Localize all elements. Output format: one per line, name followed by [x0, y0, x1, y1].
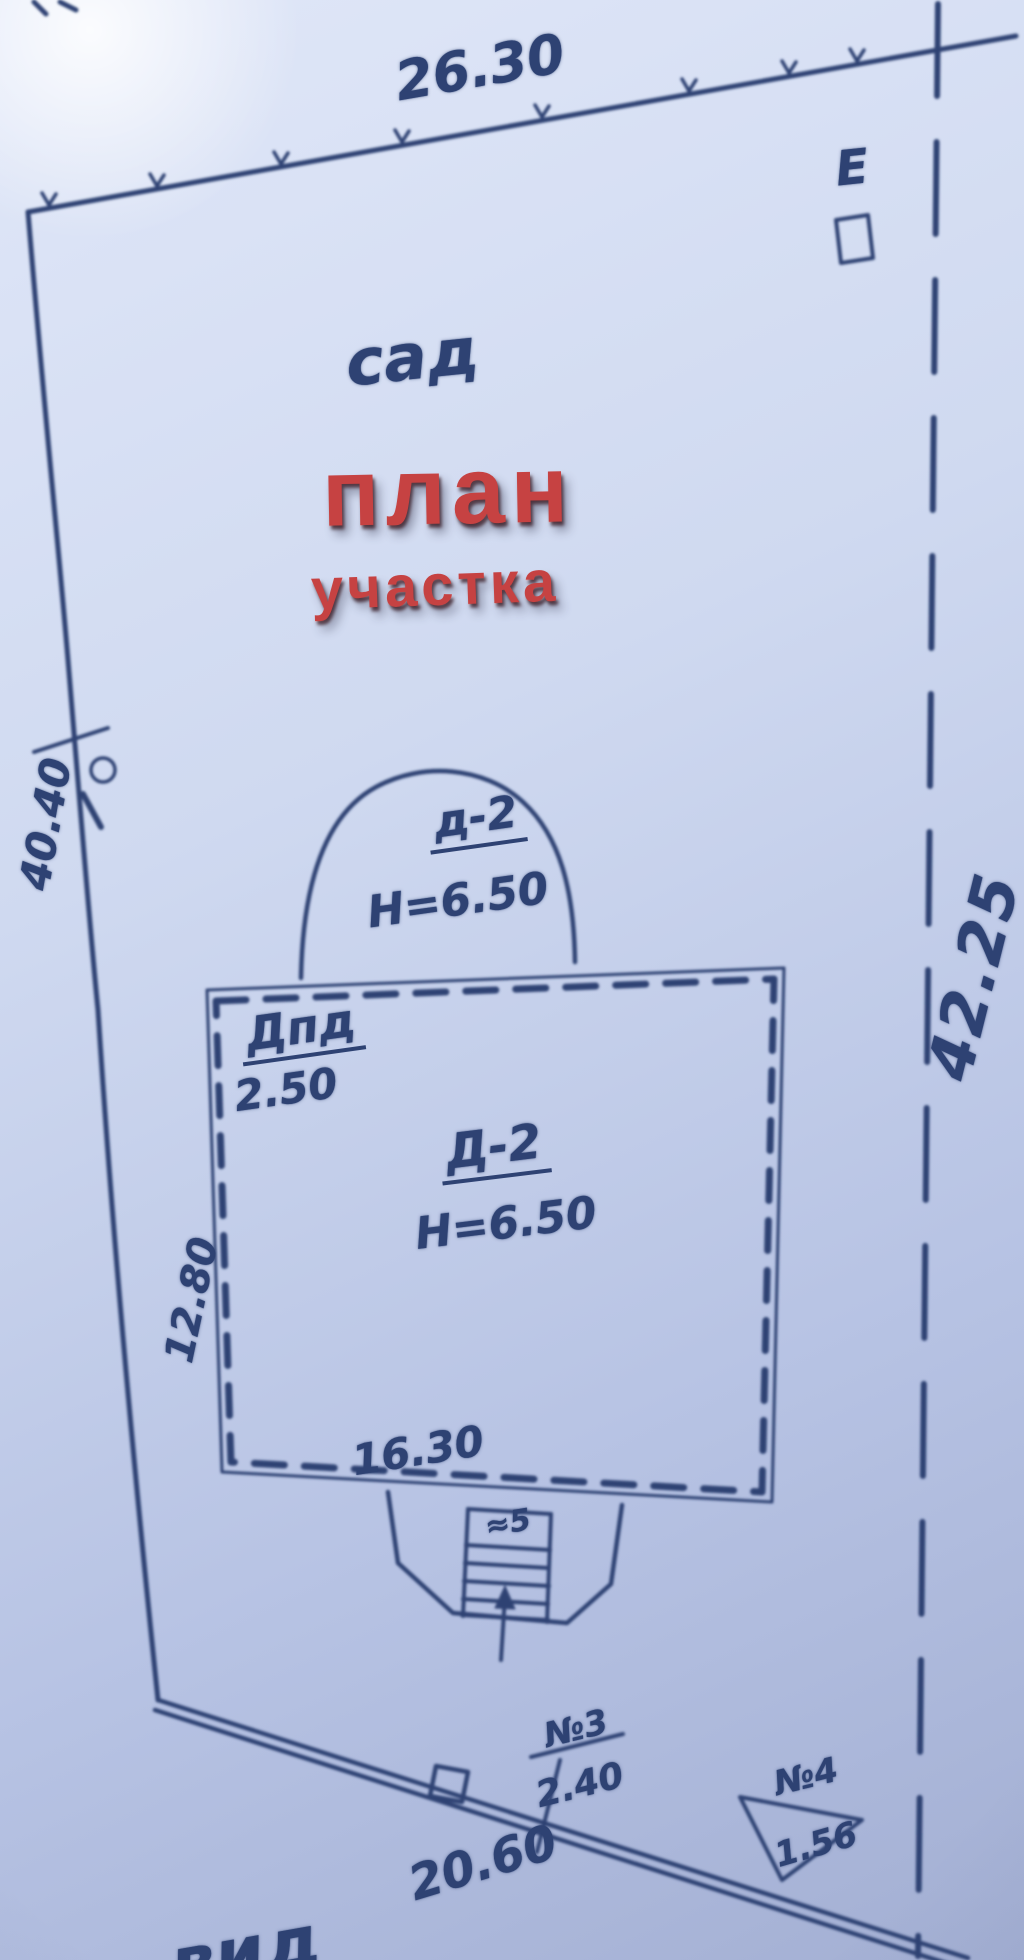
left-boundary-line	[28, 212, 158, 1700]
e-square-marker	[836, 215, 873, 263]
stair-direction-arrow	[495, 1586, 515, 1660]
overlay-title-line2: участка	[310, 553, 560, 620]
top-edge-artifacts	[34, 2, 76, 14]
corner-letter-label: Е	[833, 142, 871, 193]
garden-label: сад	[343, 319, 482, 397]
gate-post-marker	[430, 1766, 468, 1802]
left-boundary-tick	[34, 728, 108, 752]
left-boundary-scribble	[83, 758, 115, 827]
porch-mark-label: ≈5	[483, 1505, 534, 1543]
plan-drawing	[0, 0, 1024, 1960]
overlay-title-line1: план	[321, 442, 575, 541]
site-plan-photo: 26.30 Е сад план участка 40.40 42.25 д-2…	[0, 0, 1024, 1960]
